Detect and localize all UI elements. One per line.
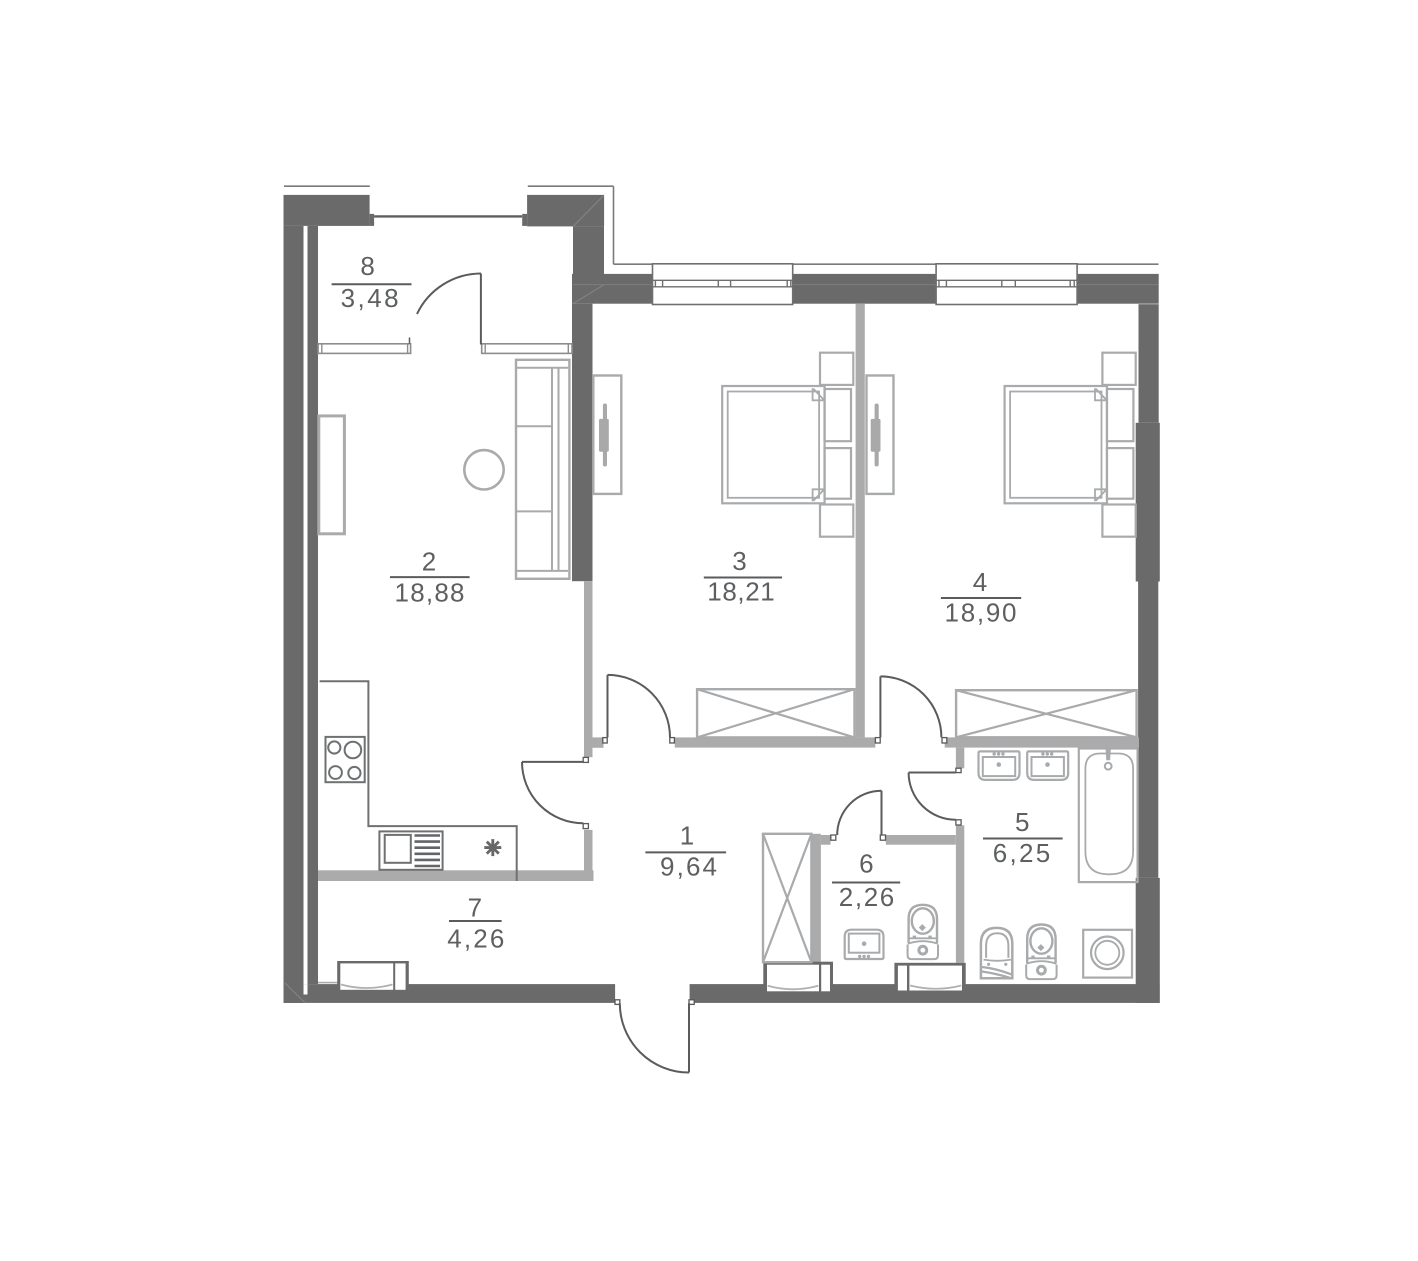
svg-text:6: 6 (859, 849, 873, 879)
svg-text:2,26: 2,26 (839, 882, 895, 912)
svg-text:2: 2 (422, 547, 436, 577)
svg-text:5: 5 (1015, 807, 1029, 837)
svg-text:4: 4 (973, 567, 987, 597)
svg-text:18,21: 18,21 (707, 576, 775, 606)
svg-text:7: 7 (468, 893, 482, 923)
svg-text:18,88: 18,88 (395, 577, 465, 607)
svg-text:3,48: 3,48 (341, 283, 399, 313)
svg-text:4,26: 4,26 (447, 924, 504, 954)
svg-text:6,25: 6,25 (993, 838, 1051, 868)
svg-text:9,64: 9,64 (660, 852, 717, 882)
svg-text:18,90: 18,90 (945, 598, 1017, 628)
svg-text:1: 1 (680, 821, 694, 851)
svg-text:8: 8 (360, 251, 374, 281)
svg-text:3: 3 (732, 546, 746, 576)
